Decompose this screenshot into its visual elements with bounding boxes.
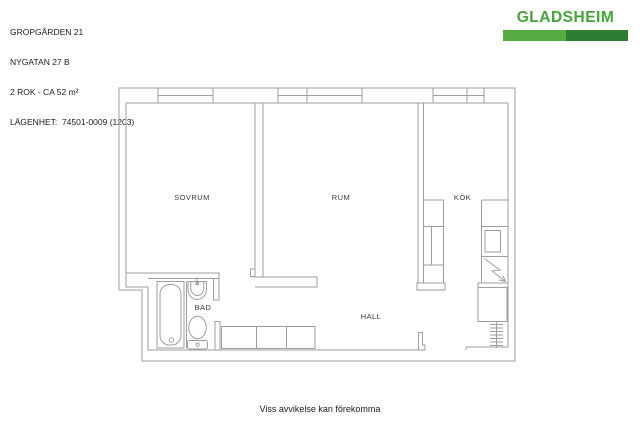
closet-icon: [478, 288, 507, 322]
floorplan-drawing: SOVRUM RUM KÖK BAD HALL: [0, 0, 640, 427]
bathtub-icon: [157, 282, 187, 349]
interior-walls: [126, 103, 445, 350]
radiator-icon: [490, 322, 503, 348]
room-label-kok: KÖK: [454, 193, 471, 202]
window-icon: [158, 89, 484, 104]
toilet-icon: [188, 316, 208, 349]
hall-wardrobe-icon: [222, 327, 316, 349]
room-label-rum: RUM: [332, 193, 350, 202]
bathroom-sink-icon: [188, 278, 207, 300]
kitchen-counter-right: [478, 200, 508, 288]
outer-walls: [119, 88, 515, 361]
floorplan-sheet: { "page": { "background_color": "#ffffff…: [0, 0, 640, 427]
disclaimer-note: Viss avvikelse kan förekomma: [0, 404, 640, 414]
room-label-hall: HALL: [361, 312, 382, 321]
room-label-sovrum: SOVRUM: [174, 193, 210, 202]
kitchen-counter-left: [424, 200, 444, 283]
stove-icon: [484, 259, 506, 282]
kitchen-sink-icon: [485, 231, 501, 253]
entrance-door-jamb-icon: [419, 333, 426, 351]
room-label-bad: BAD: [195, 303, 212, 312]
